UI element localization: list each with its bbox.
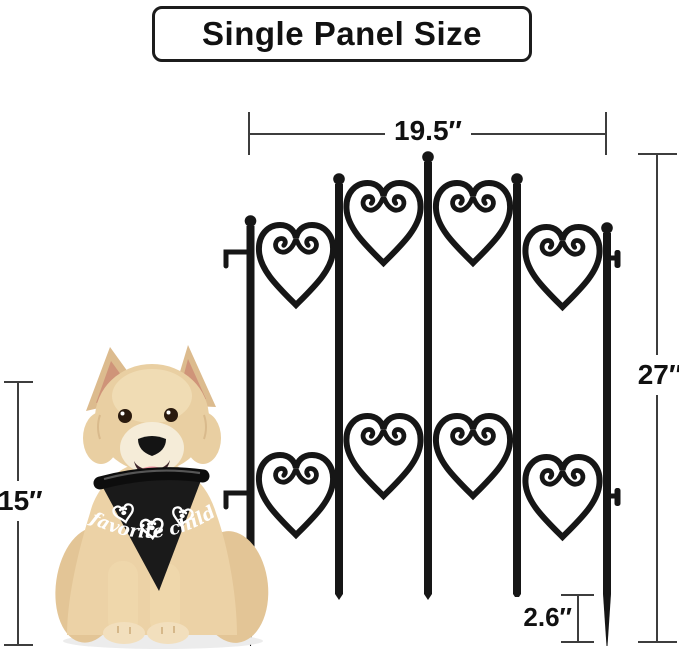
peg-right-lower bbox=[615, 488, 621, 506]
dimension-tick bbox=[4, 644, 33, 646]
fence-post-2 bbox=[333, 173, 345, 600]
dimension-line bbox=[458, 133, 606, 135]
fence-post-center bbox=[422, 151, 434, 600]
hook-left-upper bbox=[226, 252, 248, 266]
heart-icon bbox=[259, 225, 333, 305]
heart-icon bbox=[525, 227, 599, 307]
ground-stake-label: 2.6″ bbox=[500, 597, 572, 637]
heart-icon bbox=[346, 183, 420, 263]
dog-illustration: favorite child bbox=[38, 323, 288, 650]
dimension-line bbox=[656, 393, 658, 641]
fence-post-4 bbox=[511, 173, 523, 600]
dimension-line bbox=[656, 155, 658, 358]
heart-icon bbox=[525, 457, 599, 537]
title-box: Single Panel Size bbox=[152, 6, 532, 62]
dimension-line bbox=[17, 517, 19, 644]
product-size-diagram: Single Panel Size bbox=[0, 0, 679, 650]
heart-icon bbox=[436, 416, 510, 496]
panel-height-label: 27″ bbox=[627, 355, 679, 395]
dimension-tick bbox=[561, 641, 594, 643]
dimension-line bbox=[17, 383, 19, 485]
page-title: Single Panel Size bbox=[202, 15, 482, 53]
heart-icon bbox=[346, 416, 420, 496]
dimension-line bbox=[577, 596, 579, 641]
peg-right-upper bbox=[615, 250, 621, 268]
panel-width-label: 19.5″ bbox=[385, 111, 471, 151]
heart-icon bbox=[436, 183, 510, 263]
dimension-line bbox=[249, 133, 396, 135]
dog-height-label: 15″ bbox=[0, 481, 42, 521]
dimension-tick bbox=[638, 641, 677, 643]
fence-posts bbox=[245, 151, 613, 646]
panel-connector-pegs bbox=[615, 250, 621, 506]
fence-post-stake-right bbox=[601, 222, 613, 646]
